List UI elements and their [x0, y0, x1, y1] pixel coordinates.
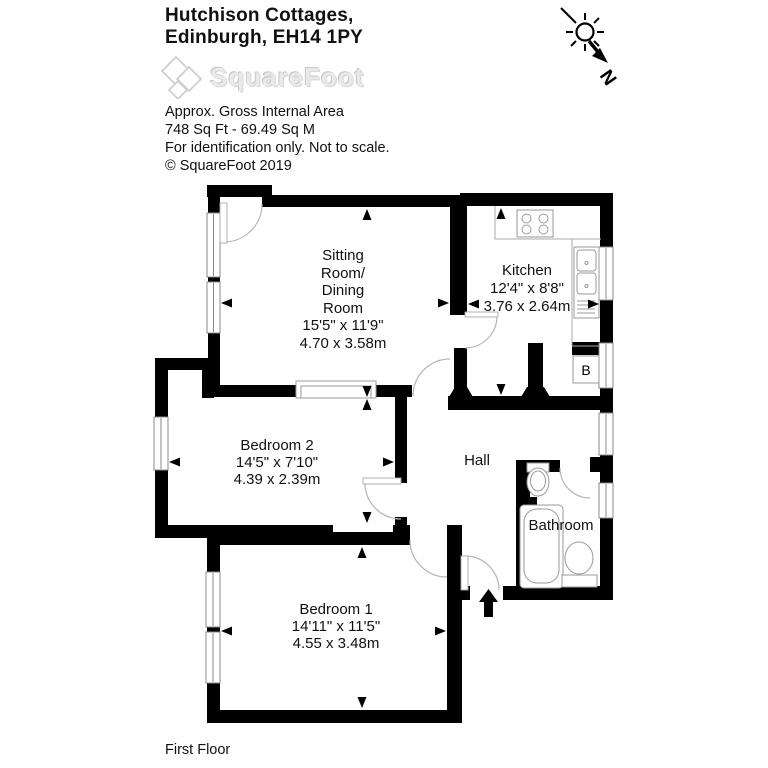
sitting-room-dims-ft: 15'5" x 11'9"	[302, 317, 383, 334]
sun-rays	[561, 8, 604, 51]
bedroom2-dims-ft: 14'5" x 7'10"	[236, 454, 318, 471]
dim-arrow	[468, 300, 479, 309]
dim-arrow	[497, 208, 506, 219]
boiler-label: B	[581, 362, 590, 378]
bedroom1-label: Bedroom 1 14'11" x 11'5" 4.55 x 3.48m	[292, 601, 380, 652]
door-leaf	[220, 203, 227, 243]
basin	[527, 463, 549, 496]
hall-label: Hall	[464, 452, 490, 469]
bedroom1-dims-m: 4.55 x 3.48m	[293, 635, 380, 652]
hob	[517, 210, 553, 237]
sun-icon	[577, 24, 594, 41]
bedroom1-name: Bedroom 1	[299, 601, 372, 618]
dim-arrow	[358, 697, 367, 708]
kitchen-dims-m: 3.76 x 2.64m	[484, 298, 571, 315]
dim-arrow	[438, 299, 449, 308]
door-arc-bathroom	[560, 468, 590, 498]
dim-arrow	[221, 627, 232, 636]
compass: N	[561, 8, 620, 90]
sitting-room-name-line2: Room/	[321, 265, 366, 282]
door-arc-kitchen	[465, 316, 497, 348]
door-arc-sitting-hall	[413, 359, 450, 396]
dim-arrow	[383, 458, 394, 467]
floor-level-label: First Floor	[165, 742, 230, 758]
floor-plan-drawing: N Sitting Room/ Dining Room 15'5" x 11'9…	[0, 0, 768, 768]
dim-arrow	[358, 547, 367, 558]
door-leaf	[461, 556, 468, 590]
sink	[574, 247, 599, 318]
sitting-room-dims-m: 4.70 x 3.58m	[300, 335, 387, 352]
floorplan-page: Hutchison Cottages, Edinburgh, EH14 1PY …	[0, 0, 768, 768]
door-arc-sitting-entry	[224, 204, 262, 242]
dim-arrow	[497, 384, 506, 395]
bedroom2-label: Bedroom 2 14'5" x 7'10" 4.39 x 2.39m	[234, 437, 321, 488]
toilet	[562, 542, 597, 587]
dim-arrow	[363, 512, 372, 523]
dim-arrow	[169, 458, 180, 467]
dim-arrow	[221, 299, 232, 308]
bedroom2-dims-m: 4.39 x 2.39m	[234, 471, 321, 488]
door-leaf	[363, 478, 401, 484]
hearth-inner	[301, 386, 371, 398]
dim-arrow	[363, 209, 372, 220]
sitting-room-name-line3: Dining	[322, 282, 365, 299]
bathroom-label: Bathroom	[528, 517, 593, 534]
bedroom1-dims-ft: 14'11" x 11'5"	[292, 618, 380, 635]
sitting-room-label: Sitting Room/ Dining Room 15'5" x 11'9" …	[300, 247, 387, 352]
bedroom2-name: Bedroom 2	[240, 437, 313, 454]
sitting-room-name-line1: Sitting	[322, 247, 364, 264]
kitchen-label: Kitchen 12'4" x 8'8" 3.76 x 2.64m	[484, 262, 571, 315]
door-arc-bedroom1	[410, 540, 447, 577]
dim-arrow	[363, 399, 372, 410]
kitchen-dims-ft: 12'4" x 8'8"	[490, 280, 564, 297]
kitchen-name: Kitchen	[502, 262, 552, 279]
sitting-room-name-line4: Room	[323, 300, 363, 317]
door-arc-entrance	[465, 556, 499, 590]
entrance-arrow	[479, 589, 498, 617]
north-label: N	[595, 66, 620, 89]
dim-arrow	[435, 627, 446, 636]
